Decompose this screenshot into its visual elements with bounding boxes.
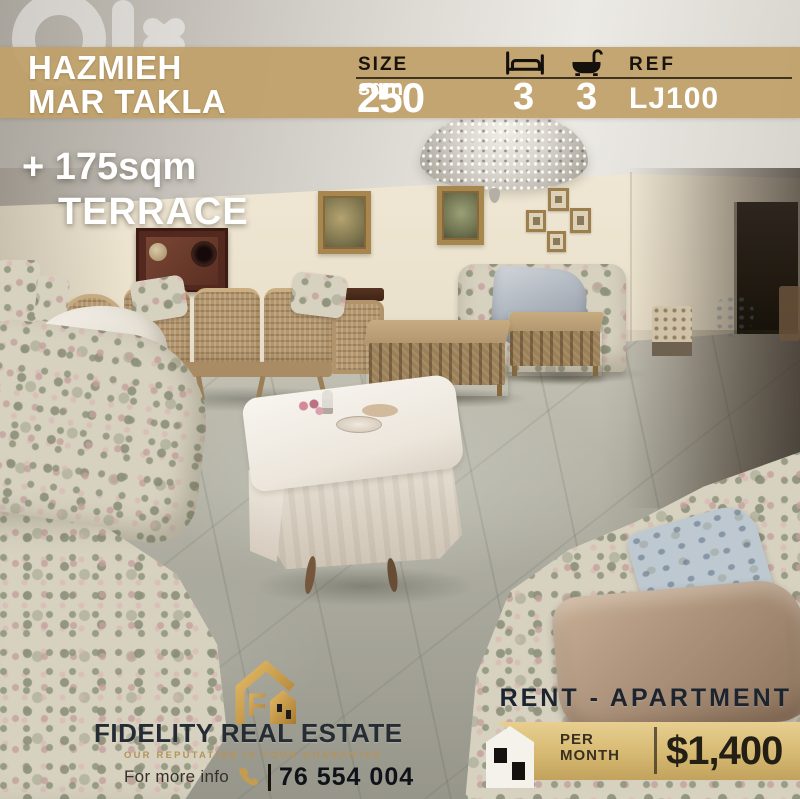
glass-plate	[336, 416, 382, 433]
location-line1: HAZMIEH	[28, 49, 182, 87]
location-line2: MAR TAKLA	[28, 83, 226, 121]
picture-frame	[570, 208, 591, 233]
contact-row: For more info 76 554 004	[124, 762, 414, 792]
wall-painting-left	[318, 191, 371, 254]
floor-shadow	[252, 566, 477, 606]
phone-icon	[237, 766, 260, 789]
price-amount: $1,400	[666, 722, 782, 780]
wicker-coffee-table-small	[508, 312, 602, 376]
brand-name: FIDELITY REAL ESTATE	[94, 718, 403, 749]
listing-image: HAZMIEH MAR TAKLA SIZE 250sqm 3 3 REF LJ…	[0, 0, 800, 799]
phone-number: 76 554 004	[279, 763, 414, 792]
satin-cushion	[550, 577, 800, 740]
ref-label: REF	[629, 54, 676, 76]
picture-frame	[548, 188, 569, 211]
picture-frame	[526, 210, 546, 232]
wall-painting-center	[437, 186, 484, 245]
per-month-label: PER MONTH	[560, 732, 620, 764]
bathrooms-count: 3	[576, 78, 597, 116]
price-divider	[654, 727, 657, 774]
picture-frame	[547, 231, 566, 252]
terrace-line1: + 175sqm	[22, 146, 196, 189]
brand-tagline: OUR REPUTATION IS YOUR GUARANTEE	[124, 750, 383, 761]
pink-flowers	[296, 398, 326, 418]
header-band: HAZMIEH MAR TAKLA SIZE 250sqm 3 3 REF LJ…	[0, 47, 800, 118]
hall-chair	[779, 286, 800, 341]
info-label: For more info	[124, 767, 229, 787]
terrace-note: + 175sqm TERRACE	[0, 146, 320, 246]
floral-pillow	[290, 271, 349, 319]
bed-icon	[504, 50, 546, 76]
contact-divider	[268, 764, 271, 791]
planter-stool	[652, 306, 692, 354]
bath-icon	[570, 48, 603, 76]
ref-value: LJ100	[629, 84, 719, 114]
terrace-line2: TERRACE	[58, 191, 249, 234]
listing-type: RENT - APARTMENT	[500, 684, 792, 713]
fidelity-house-logo-icon: F	[226, 652, 300, 728]
size-label: SIZE	[358, 54, 408, 76]
table-item	[362, 404, 398, 417]
bedrooms-count: 3	[513, 78, 534, 116]
